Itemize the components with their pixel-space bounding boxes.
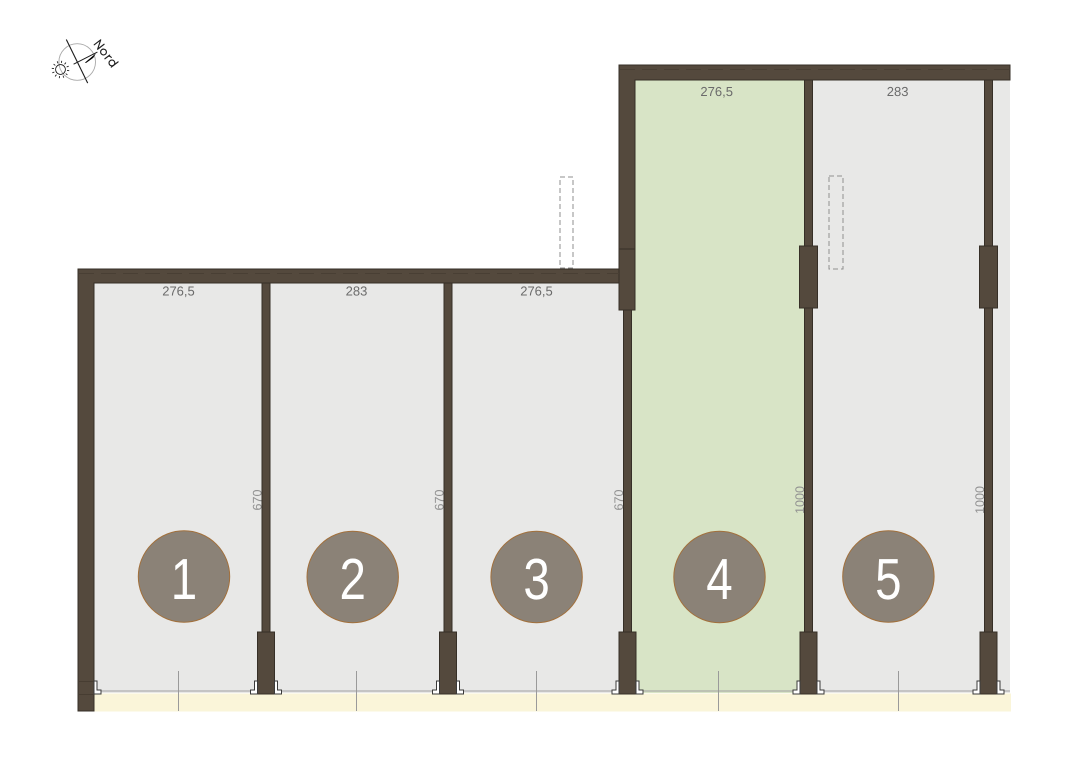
svg-text:1000: 1000 — [973, 486, 987, 514]
svg-text:5: 5 — [875, 547, 901, 612]
svg-text:2: 2 — [339, 547, 365, 612]
svg-text:3: 3 — [523, 547, 549, 612]
svg-text:1000: 1000 — [793, 486, 807, 514]
svg-text:670: 670 — [432, 490, 446, 511]
svg-text:283: 283 — [887, 84, 909, 99]
svg-text:276,5: 276,5 — [162, 284, 195, 299]
svg-text:670: 670 — [250, 490, 264, 511]
svg-text:276,5: 276,5 — [700, 84, 733, 99]
svg-text:1: 1 — [171, 547, 197, 612]
svg-text:276,5: 276,5 — [520, 284, 553, 299]
svg-text:670: 670 — [612, 490, 626, 511]
svg-text:4: 4 — [706, 547, 732, 612]
svg-text:283: 283 — [346, 284, 368, 299]
